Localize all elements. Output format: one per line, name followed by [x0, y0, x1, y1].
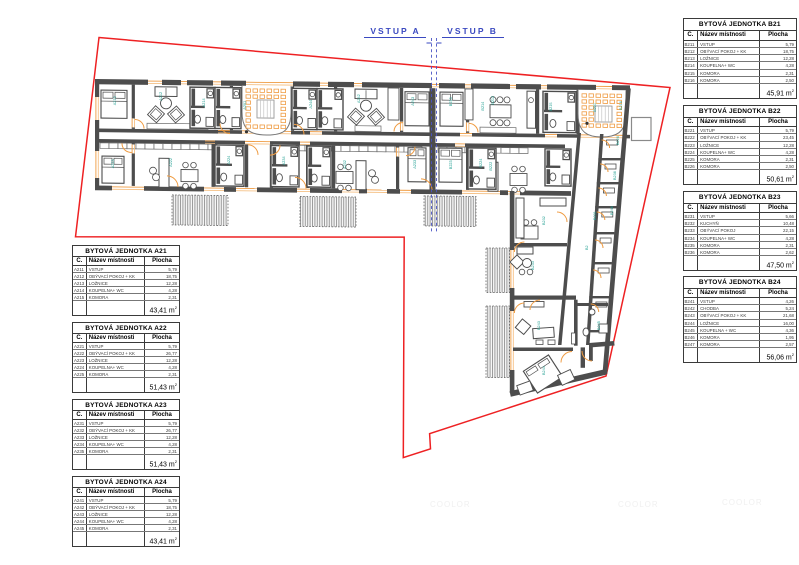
svg-text:A244: A244 — [309, 100, 313, 109]
svg-text:B201: B201 — [593, 211, 597, 220]
svg-text:B213: B213 — [449, 97, 453, 106]
svg-text:B232: B232 — [542, 216, 546, 225]
svg-text:B224: B224 — [479, 159, 483, 168]
svg-text:A243: A243 — [411, 97, 415, 106]
svg-text:A214: A214 — [202, 98, 206, 107]
svg-text:A224: A224 — [227, 156, 231, 165]
svg-text:B243: B243 — [537, 321, 541, 330]
svg-text:A223: A223 — [111, 159, 115, 168]
svg-text:B222: B222 — [489, 162, 493, 171]
svg-text:B246: B246 — [610, 206, 614, 215]
svg-text:B223: B223 — [449, 160, 453, 169]
svg-text:B212: B212 — [491, 96, 495, 105]
svg-text:B245: B245 — [597, 321, 601, 330]
svg-text:A201: A201 — [243, 101, 247, 110]
svg-text:A233: A233 — [413, 160, 417, 169]
svg-text:B201: B201 — [593, 103, 597, 112]
svg-text:B215: B215 — [549, 102, 553, 111]
svg-text:B233: B233 — [531, 261, 535, 270]
svg-text:B214: B214 — [481, 102, 485, 111]
svg-text:B244: B244 — [542, 366, 546, 375]
svg-text:A213: A213 — [113, 96, 117, 105]
svg-text:A232: A232 — [343, 160, 347, 169]
svg-text:B236: B236 — [613, 171, 617, 180]
svg-text:A234: A234 — [282, 156, 286, 165]
svg-text:B216: B216 — [619, 101, 623, 110]
svg-text:A212: A212 — [159, 92, 163, 101]
svg-text:A222: A222 — [169, 158, 173, 167]
svg-text:A242: A242 — [357, 94, 361, 103]
svg-text:B226: B226 — [616, 136, 620, 145]
svg-text:B2: B2 — [585, 245, 589, 250]
